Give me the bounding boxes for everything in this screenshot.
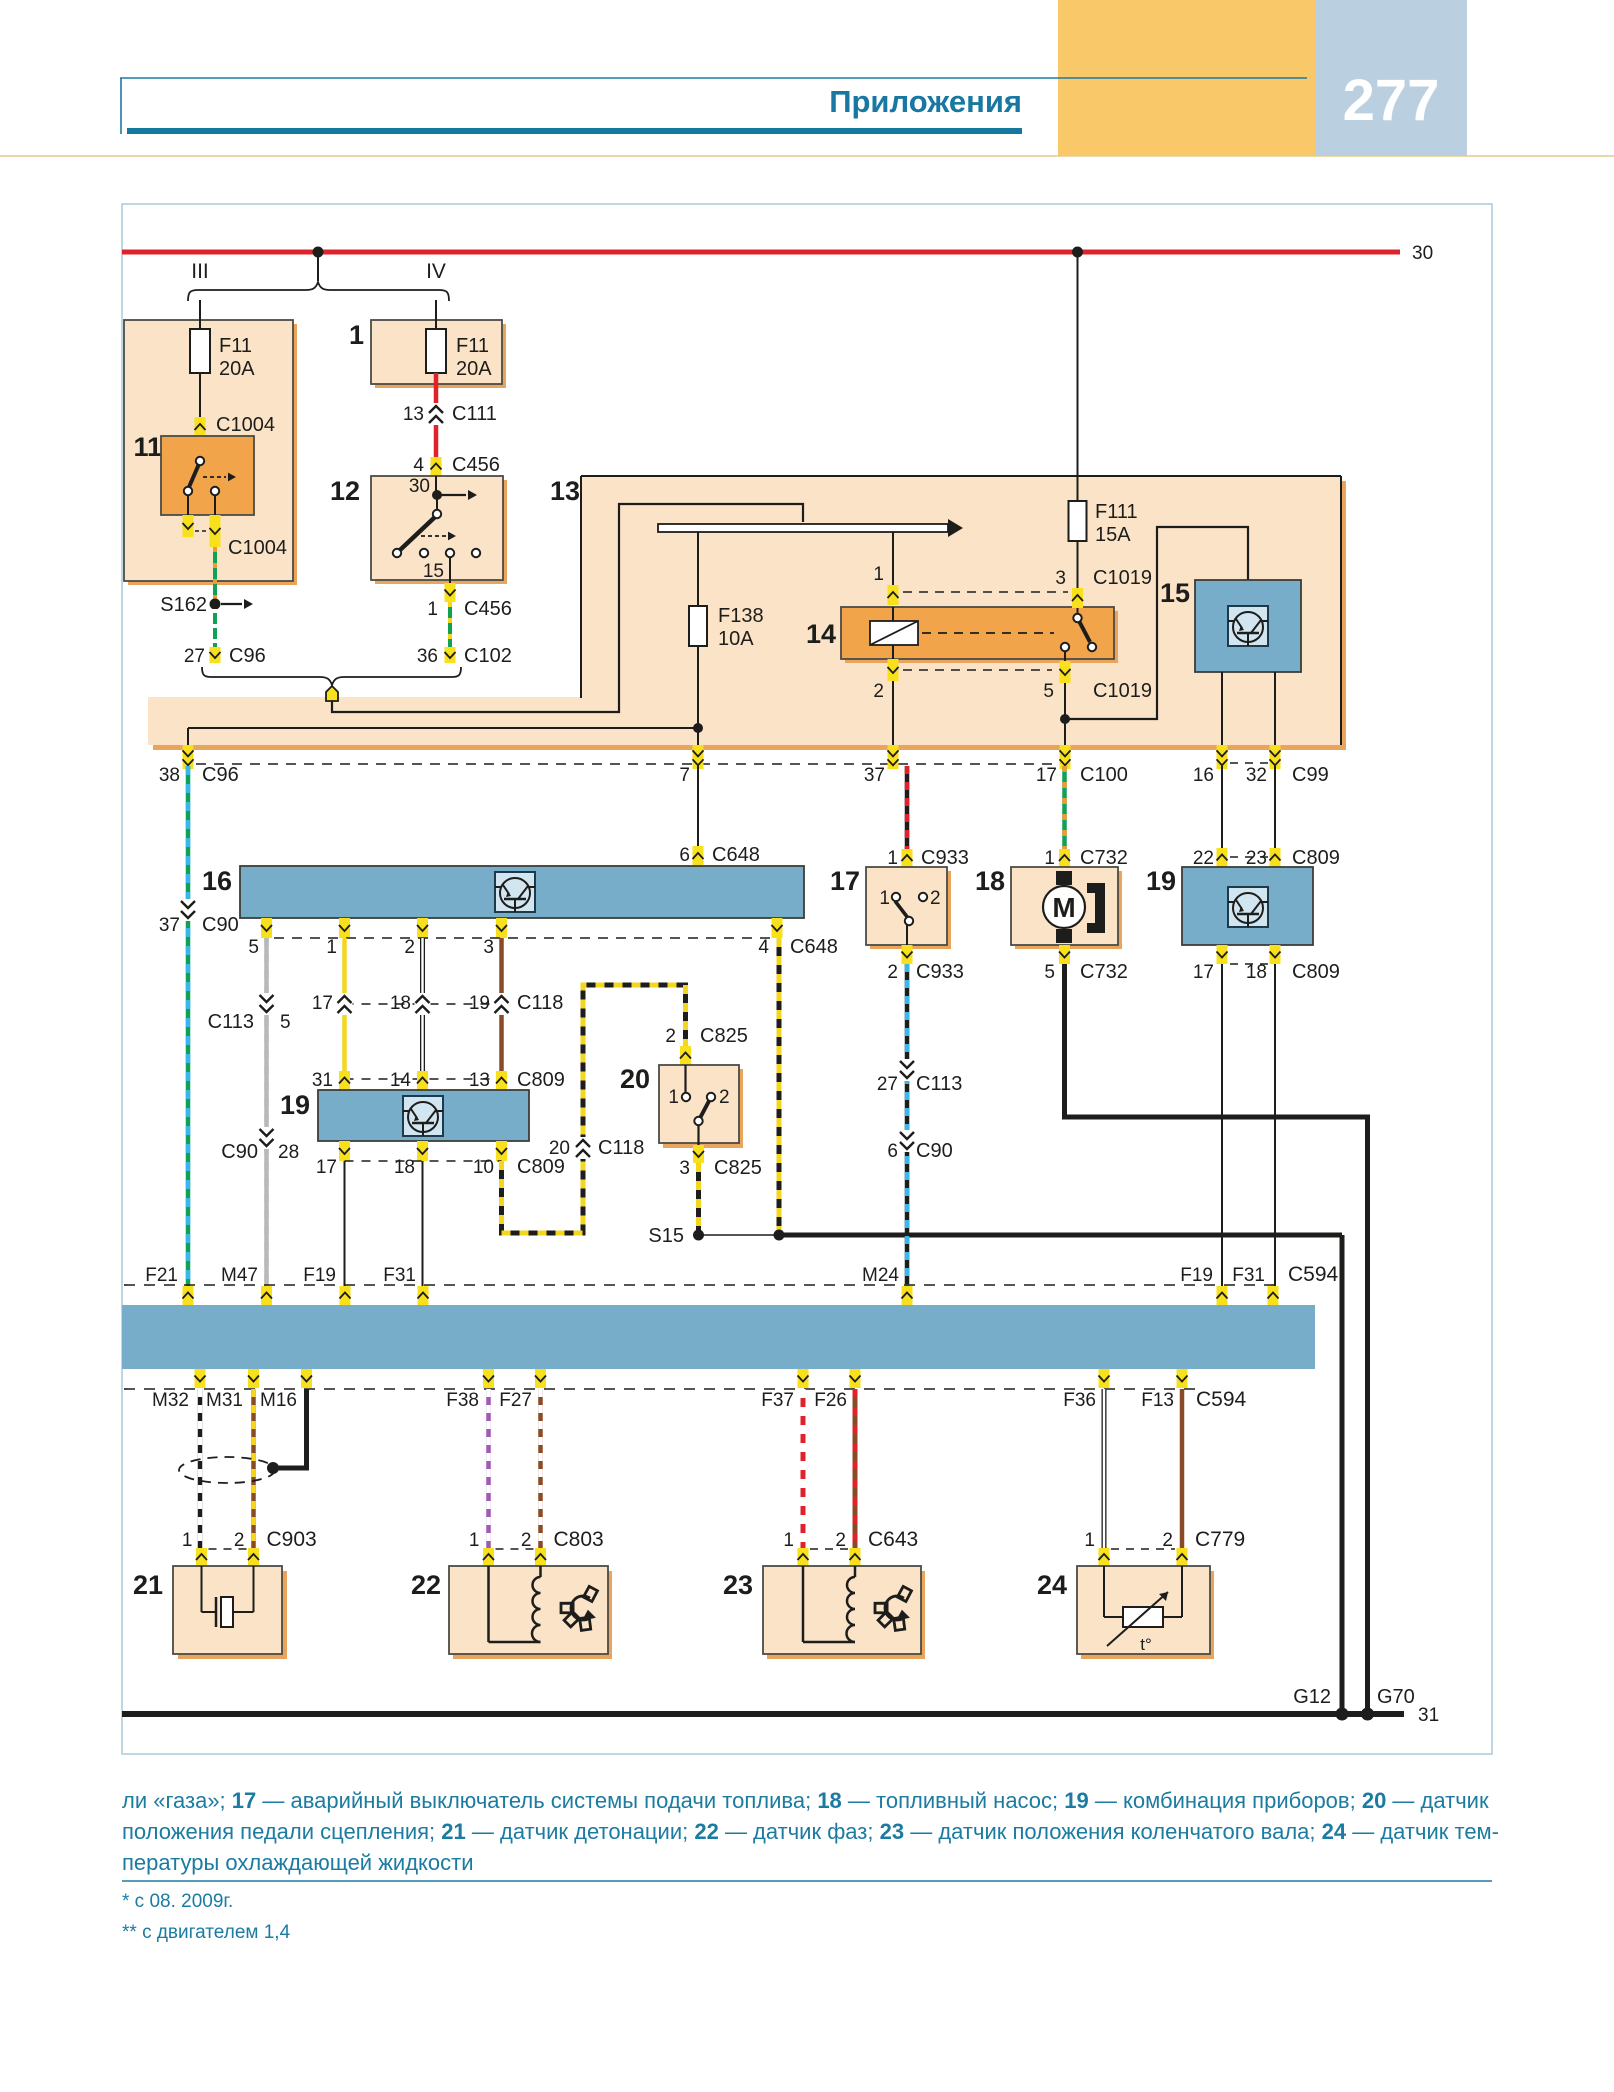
svg-text:4: 4 <box>413 455 424 476</box>
svg-text:17: 17 <box>830 866 860 896</box>
svg-text:C825: C825 <box>714 1157 762 1179</box>
svg-text:14: 14 <box>806 619 836 649</box>
svg-text:F37: F37 <box>761 1390 794 1411</box>
svg-text:C99: C99 <box>1292 764 1329 786</box>
svg-text:C594: C594 <box>1288 1263 1339 1286</box>
svg-text:30: 30 <box>1412 243 1433 264</box>
svg-text:16: 16 <box>1193 765 1214 786</box>
svg-text:18: 18 <box>1246 962 1267 983</box>
svg-text:1: 1 <box>326 937 337 958</box>
svg-text:C594: C594 <box>1196 1388 1247 1411</box>
svg-text:C1019: C1019 <box>1093 567 1152 589</box>
svg-text:17: 17 <box>312 993 333 1014</box>
svg-text:C779: C779 <box>1195 1528 1245 1551</box>
svg-text:277: 277 <box>1343 68 1440 133</box>
svg-text:F19: F19 <box>303 1265 336 1286</box>
svg-text:1: 1 <box>469 1530 480 1551</box>
svg-text:ли «газа»; 17 — аварийный выкл: ли «газа»; 17 — аварийный выключатель си… <box>122 1788 1489 1813</box>
svg-text:F13: F13 <box>1141 1390 1174 1411</box>
svg-text:2: 2 <box>719 1087 730 1108</box>
svg-text:18: 18 <box>390 993 411 1014</box>
svg-text:C809: C809 <box>517 1156 565 1178</box>
svg-text:5: 5 <box>1044 962 1055 983</box>
svg-text:F21: F21 <box>145 1265 178 1286</box>
svg-text:15: 15 <box>1160 578 1190 608</box>
svg-text:18: 18 <box>394 1157 415 1178</box>
svg-text:C809: C809 <box>1292 961 1340 983</box>
svg-text:4: 4 <box>758 937 769 958</box>
svg-text:F27: F27 <box>499 1390 532 1411</box>
svg-text:20: 20 <box>620 1064 650 1094</box>
svg-text:IV: IV <box>426 260 446 283</box>
svg-text:5: 5 <box>248 937 259 958</box>
svg-text:C825: C825 <box>700 1025 748 1047</box>
svg-text:C803: C803 <box>554 1528 604 1551</box>
svg-text:1: 1 <box>349 320 364 350</box>
svg-text:C96: C96 <box>202 764 239 786</box>
svg-text:6: 6 <box>887 1141 898 1162</box>
svg-text:17: 17 <box>1036 765 1057 786</box>
svg-text:C732: C732 <box>1080 961 1128 983</box>
svg-text:3: 3 <box>1055 568 1066 589</box>
svg-text:положения педали сцепления; 21: положения педали сцепления; 21 — датчик … <box>122 1819 1499 1844</box>
svg-text:18: 18 <box>975 866 1005 896</box>
svg-text:M32: M32 <box>152 1390 189 1411</box>
svg-text:C643: C643 <box>868 1528 918 1551</box>
svg-text:2: 2 <box>835 1530 846 1551</box>
svg-text:F111: F111 <box>1095 501 1138 523</box>
svg-text:2: 2 <box>521 1530 532 1551</box>
svg-text:C118: C118 <box>598 1137 644 1159</box>
svg-text:M: M <box>1052 892 1075 923</box>
svg-text:F138: F138 <box>718 605 764 627</box>
svg-text:C933: C933 <box>921 847 969 869</box>
svg-text:13: 13 <box>403 404 424 425</box>
svg-text:6: 6 <box>679 845 690 866</box>
svg-text:M16: M16 <box>260 1390 297 1411</box>
svg-text:1: 1 <box>887 848 898 869</box>
svg-text:22: 22 <box>411 1570 441 1600</box>
svg-text:36: 36 <box>417 646 438 667</box>
svg-text:37: 37 <box>159 915 180 936</box>
svg-text:1: 1 <box>668 1087 679 1108</box>
svg-text:28: 28 <box>278 1142 299 1163</box>
svg-text:1: 1 <box>873 564 884 585</box>
svg-text:C456: C456 <box>464 598 512 620</box>
svg-text:C1004: C1004 <box>216 414 275 436</box>
svg-text:2: 2 <box>234 1530 245 1551</box>
svg-text:C100: C100 <box>1080 764 1128 786</box>
svg-text:38: 38 <box>159 765 180 786</box>
svg-text:F26: F26 <box>814 1390 847 1411</box>
svg-text:S162: S162 <box>160 594 207 616</box>
svg-text:F31: F31 <box>1232 1265 1265 1286</box>
svg-text:5: 5 <box>280 1012 291 1033</box>
svg-text:F11: F11 <box>456 335 489 357</box>
svg-text:3: 3 <box>679 1158 690 1179</box>
svg-text:* с 08. 2009г.: * с 08. 2009г. <box>122 1891 233 1912</box>
svg-text:27: 27 <box>184 646 205 667</box>
svg-text:1: 1 <box>427 599 438 620</box>
svg-text:C102: C102 <box>464 645 512 667</box>
svg-text:F36: F36 <box>1063 1390 1096 1411</box>
svg-text:19: 19 <box>469 993 490 1014</box>
svg-text:C96: C96 <box>229 645 266 667</box>
svg-text:3: 3 <box>483 937 494 958</box>
svg-text:19: 19 <box>1146 866 1176 896</box>
svg-text:пературы охлаждающей жидкости: пературы охлаждающей жидкости <box>122 1850 474 1875</box>
svg-text:2: 2 <box>404 937 415 958</box>
svg-text:C809: C809 <box>517 1069 565 1091</box>
svg-text:C456: C456 <box>452 454 500 476</box>
svg-text:G70: G70 <box>1377 1686 1415 1708</box>
svg-text:5: 5 <box>1043 681 1054 702</box>
svg-text:2: 2 <box>873 681 884 702</box>
svg-text:13: 13 <box>469 1070 490 1091</box>
svg-text:2: 2 <box>930 888 941 909</box>
svg-text:M31: M31 <box>206 1390 243 1411</box>
svg-text:Приложения: Приложения <box>829 84 1022 119</box>
svg-text:15: 15 <box>423 561 444 582</box>
svg-text:16: 16 <box>202 866 232 896</box>
svg-text:10: 10 <box>473 1157 494 1178</box>
svg-text:F11: F11 <box>219 335 252 357</box>
svg-text:C90: C90 <box>221 1141 258 1163</box>
svg-text:2: 2 <box>665 1026 676 1047</box>
svg-text:G12: G12 <box>1293 1686 1331 1708</box>
svg-text:F31: F31 <box>383 1265 416 1286</box>
svg-text:20: 20 <box>549 1138 570 1159</box>
svg-text:23: 23 <box>723 1570 753 1600</box>
svg-text:C1004: C1004 <box>228 537 287 559</box>
svg-text:10A: 10A <box>718 628 754 650</box>
svg-text:24: 24 <box>1037 1570 1067 1600</box>
svg-text:1: 1 <box>783 1530 794 1551</box>
svg-text:13: 13 <box>550 476 580 506</box>
svg-text:III: III <box>191 260 209 283</box>
svg-text:C732: C732 <box>1080 847 1128 869</box>
svg-text:M24: M24 <box>862 1265 899 1286</box>
svg-text:M47: M47 <box>221 1265 258 1286</box>
svg-text:31: 31 <box>1418 1705 1439 1726</box>
svg-text:1: 1 <box>182 1530 193 1551</box>
svg-text:F38: F38 <box>446 1390 479 1411</box>
svg-text:** с двигателем 1,4: ** с двигателем 1,4 <box>122 1922 291 1943</box>
svg-text:C111: C111 <box>452 403 497 425</box>
svg-text:C113: C113 <box>208 1011 254 1033</box>
svg-text:20A: 20A <box>219 358 255 380</box>
svg-text:2: 2 <box>887 962 898 983</box>
svg-text:37: 37 <box>864 765 885 786</box>
svg-text:S15: S15 <box>648 1225 684 1247</box>
svg-text:27: 27 <box>877 1074 898 1095</box>
svg-text:7: 7 <box>679 765 690 786</box>
svg-text:23: 23 <box>1246 848 1267 869</box>
svg-text:11: 11 <box>133 432 162 462</box>
svg-text:30: 30 <box>409 476 430 497</box>
svg-text:C903: C903 <box>267 1528 317 1551</box>
svg-text:17: 17 <box>316 1157 337 1178</box>
svg-text:14: 14 <box>390 1070 412 1091</box>
svg-text:12: 12 <box>330 476 360 506</box>
svg-text:1: 1 <box>1044 848 1055 869</box>
svg-text:1: 1 <box>879 888 890 909</box>
svg-text:C648: C648 <box>790 936 838 958</box>
svg-text:C118: C118 <box>517 992 563 1014</box>
svg-text:19: 19 <box>280 1090 310 1120</box>
svg-text:t°: t° <box>1140 1635 1152 1654</box>
svg-text:20A: 20A <box>456 358 492 380</box>
svg-text:C90: C90 <box>916 1140 953 1162</box>
svg-text:2: 2 <box>1162 1530 1173 1551</box>
svg-text:21: 21 <box>133 1570 163 1600</box>
svg-text:15A: 15A <box>1095 524 1131 546</box>
svg-text:C90: C90 <box>202 914 239 936</box>
svg-text:22: 22 <box>1193 848 1214 869</box>
svg-text:C648: C648 <box>712 844 760 866</box>
svg-text:F19: F19 <box>1180 1265 1213 1286</box>
svg-text:32: 32 <box>1246 765 1267 786</box>
svg-text:C1019: C1019 <box>1093 680 1152 702</box>
svg-text:C933: C933 <box>916 961 964 983</box>
svg-text:31: 31 <box>312 1070 333 1091</box>
svg-text:1: 1 <box>1084 1530 1095 1551</box>
svg-text:C113: C113 <box>916 1073 962 1095</box>
svg-text:C809: C809 <box>1292 847 1340 869</box>
svg-text:17: 17 <box>1193 962 1214 983</box>
